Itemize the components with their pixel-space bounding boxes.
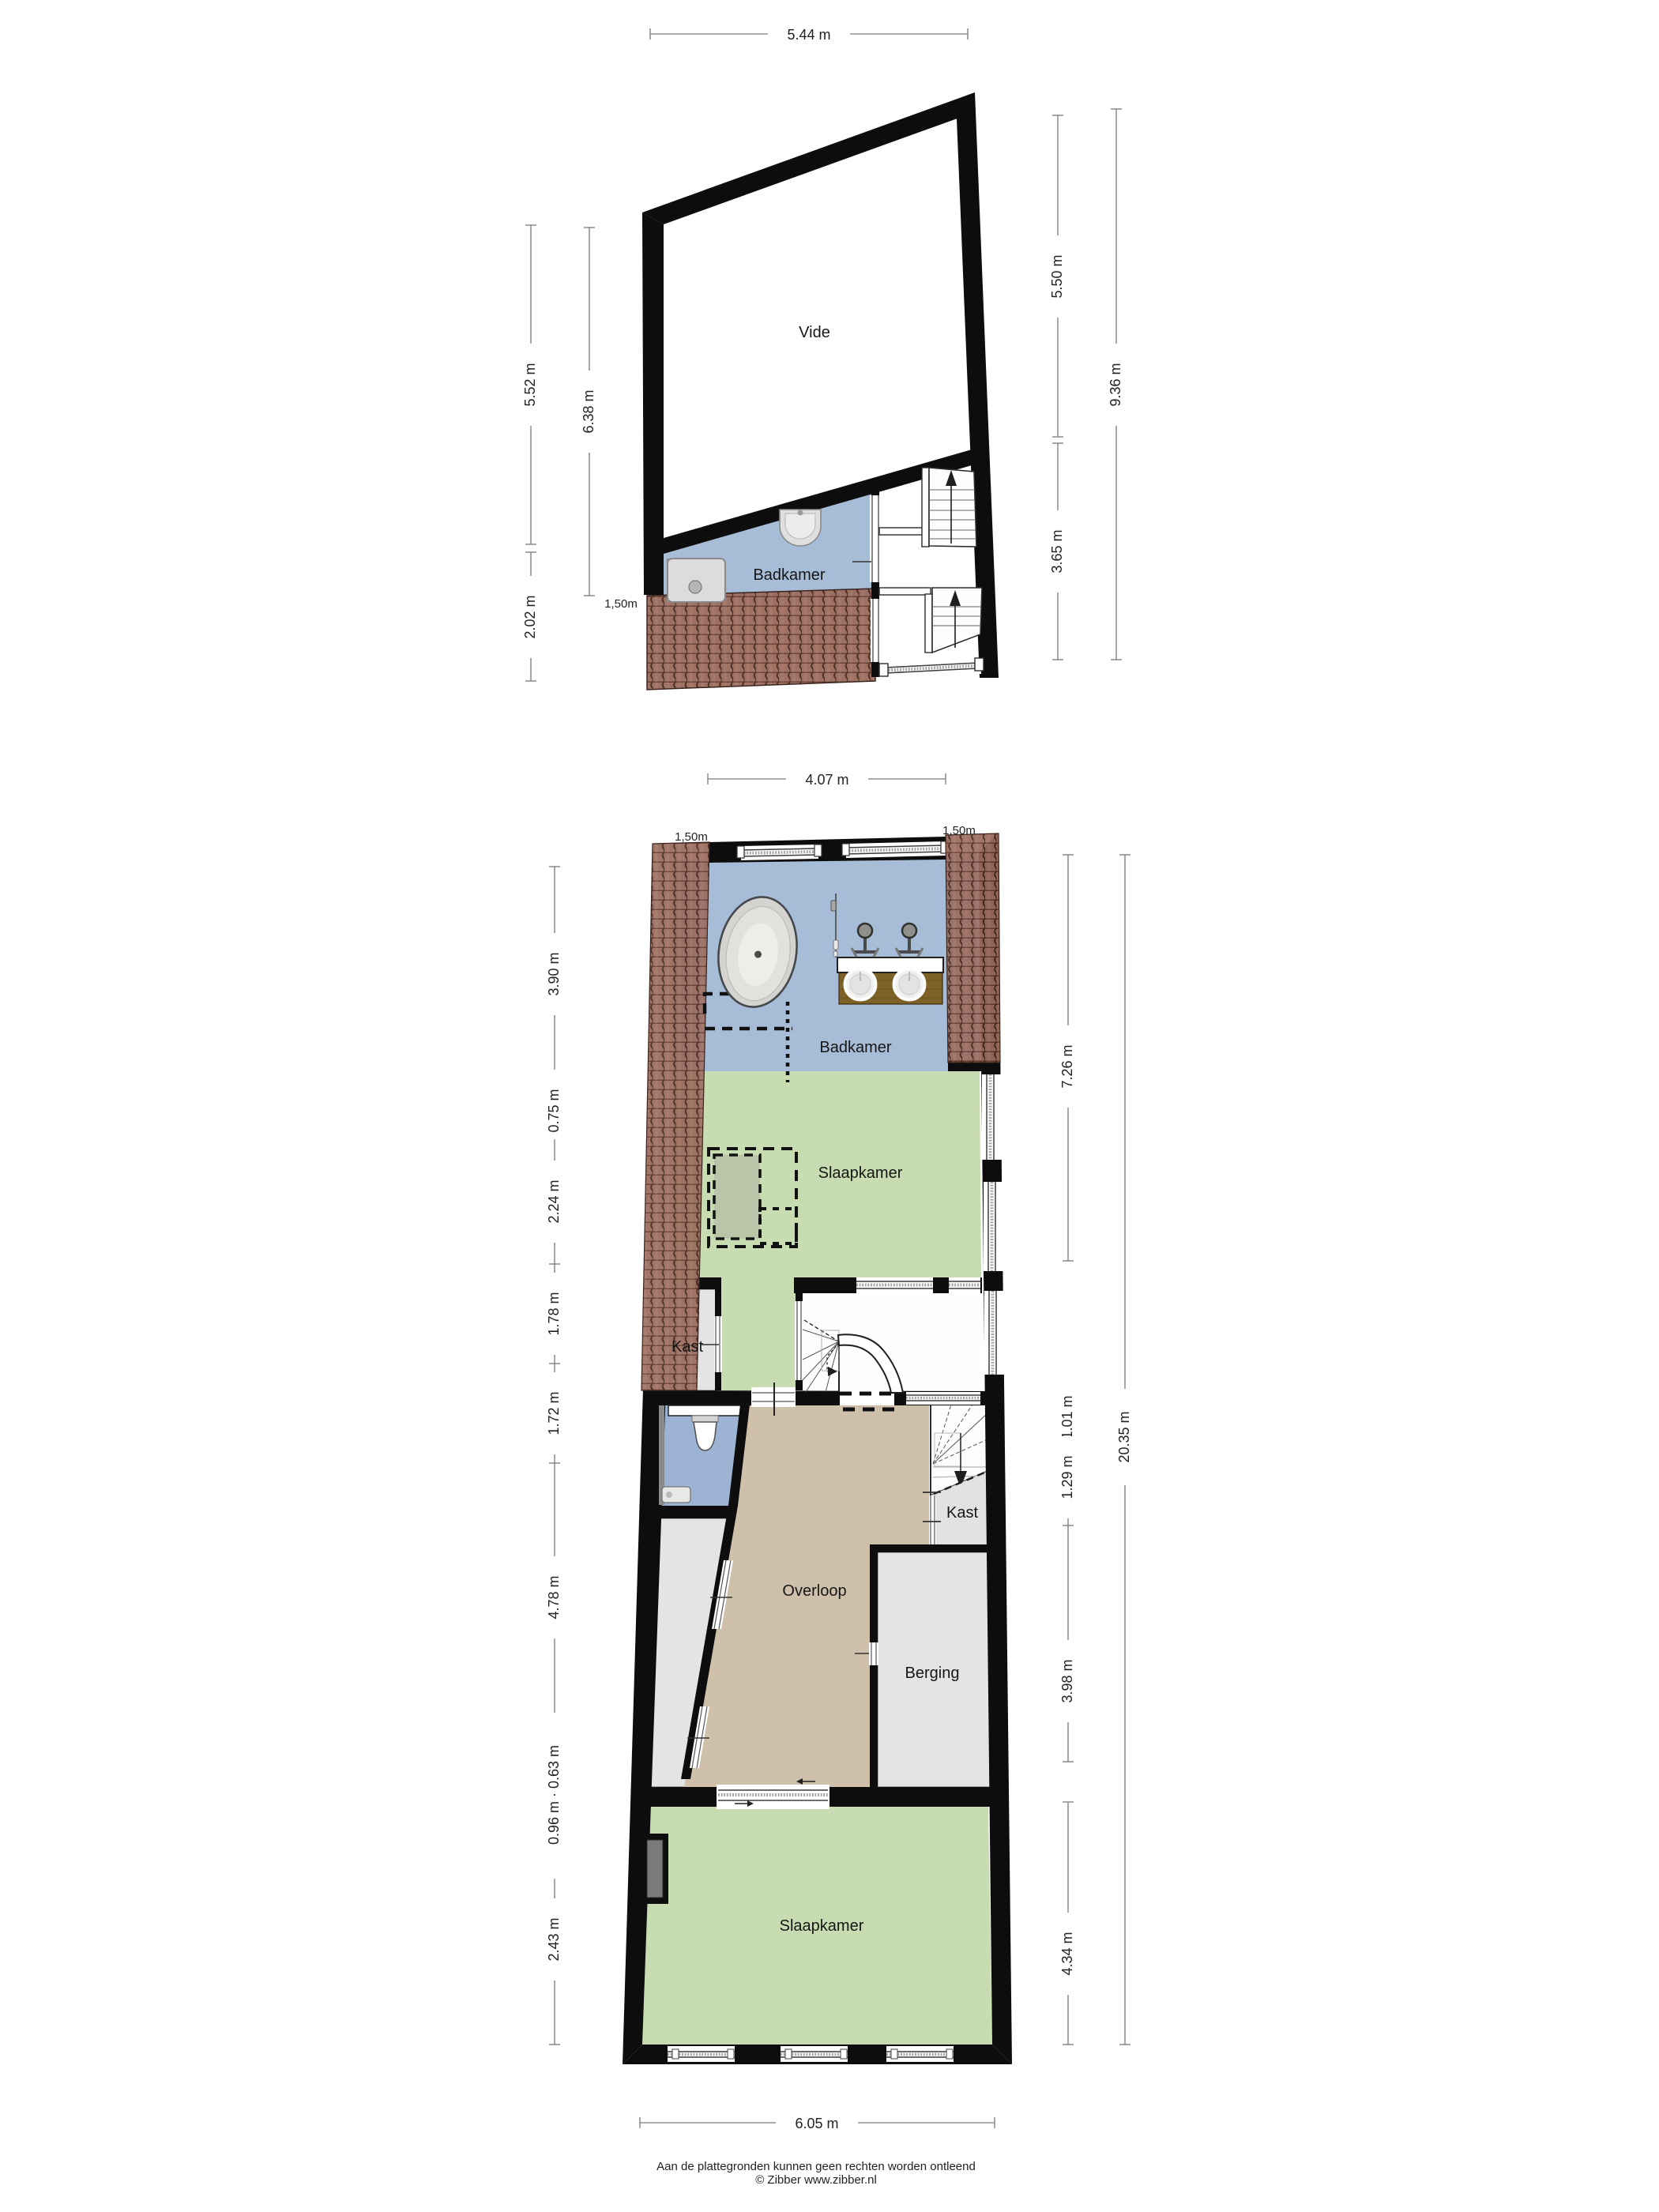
svg-text:3.90 m: 3.90 m [546, 952, 562, 995]
svg-text:Kast: Kast [946, 1504, 978, 1522]
svg-text:Badkamer: Badkamer [819, 1039, 891, 1056]
svg-text:1.72 m: 1.72 m [546, 1391, 562, 1435]
svg-text:5.44 m: 5.44 m [787, 27, 830, 43]
svg-text:1.78 m: 1.78 m [546, 1292, 562, 1335]
svg-text:Kast: Kast [671, 1338, 703, 1356]
svg-text:1.29 m: 1.29 m [1059, 1455, 1075, 1499]
svg-text:Vide: Vide [799, 324, 830, 341]
svg-text:Slaapkamer: Slaapkamer [780, 1917, 864, 1935]
svg-text:3.65 m: 3.65 m [1049, 529, 1065, 573]
svg-text:7.26 m: 7.26 m [1059, 1044, 1075, 1088]
svg-text:1.01 m: 1.01 m [1059, 1395, 1075, 1439]
svg-text:1,50m: 1,50m [604, 597, 638, 611]
svg-text:0.75 m: 0.75 m [546, 1089, 562, 1132]
svg-text:6.38 m: 6.38 m [581, 389, 596, 433]
svg-text:20.35 m: 20.35 m [1116, 1411, 1132, 1462]
svg-text:3.98 m: 3.98 m [1059, 1659, 1075, 1702]
svg-text:4.34 m: 4.34 m [1059, 1932, 1075, 1975]
svg-text:Aan de plattegronden kunnen ge: Aan de plattegronden kunnen geen rechten… [656, 2160, 976, 2173]
svg-text:© Zibber www.zibber.nl: © Zibber www.zibber.nl [755, 2173, 877, 2187]
svg-text:Slaapkamer: Slaapkamer [818, 1164, 903, 1182]
svg-text:2.43 m: 2.43 m [546, 1917, 562, 1961]
svg-text:5.52 m: 5.52 m [522, 363, 538, 406]
svg-text:1,50m: 1,50m [675, 830, 708, 844]
svg-text:Badkamer: Badkamer [753, 566, 825, 584]
svg-text:Overloop: Overloop [782, 1582, 846, 1600]
svg-text:2.24 m: 2.24 m [546, 1179, 562, 1223]
svg-text:6.05 m: 6.05 m [795, 2116, 838, 2131]
svg-text:9.36 m: 9.36 m [1108, 363, 1123, 406]
svg-text:5.50 m: 5.50 m [1049, 254, 1065, 298]
svg-text:2.02 m: 2.02 m [522, 595, 538, 638]
svg-text:0.96 m · 0.63 m: 0.96 m · 0.63 m [546, 1745, 562, 1845]
svg-text:4.78 m: 4.78 m [546, 1575, 562, 1619]
svg-text:1,50m: 1,50m [942, 824, 976, 837]
svg-text:Berging: Berging [905, 1665, 960, 1682]
svg-text:4.07 m: 4.07 m [805, 772, 848, 788]
